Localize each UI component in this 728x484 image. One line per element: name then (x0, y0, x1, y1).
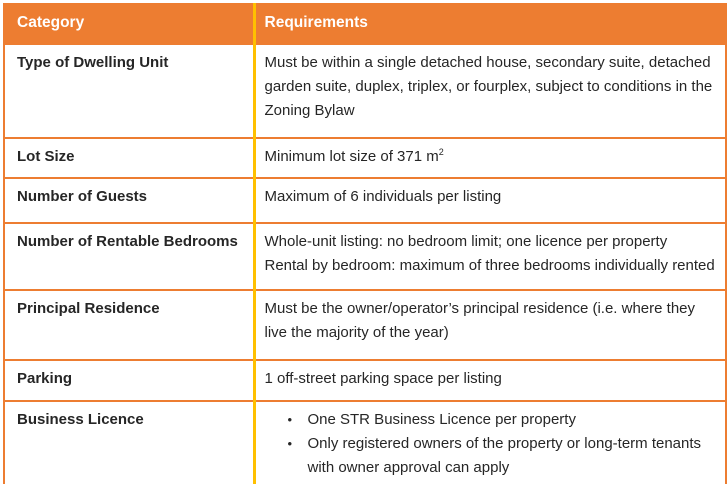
requirement-principal-residence: Must be the owner/operator’s principal r… (254, 290, 726, 360)
table-row: Principal Residence Must be the owner/op… (4, 290, 726, 360)
header-category: Category (4, 4, 254, 44)
table-row: Number of Rentable Bedrooms Whole-unit l… (4, 223, 726, 290)
table-row: Lot Size Minimum lot size of 371 m2 (4, 138, 726, 178)
table-row: Parking 1 off-street parking space per l… (4, 360, 726, 401)
lot-size-text: Minimum lot size of 371 m (265, 148, 439, 165)
table-row: Type of Dwelling Unit Must be within a s… (4, 44, 726, 138)
rentable-bedrooms-line-2: Rental by bedroom: maximum of three bedr… (265, 254, 716, 278)
category-business-licence: Business Licence (4, 401, 254, 484)
category-parking: Parking (4, 360, 254, 401)
business-licence-bullet-1: • One STR Business Licence per property (265, 408, 716, 432)
page: Category Requirements Type of Dwelling U… (0, 0, 728, 484)
header-requirements: Requirements (254, 4, 726, 44)
table-row: Number of Guests Maximum of 6 individual… (4, 178, 726, 223)
bullet-1-text: One STR Business Licence per property (308, 408, 716, 432)
category-lot-size: Lot Size (4, 138, 254, 178)
requirement-dwelling-unit: Must be within a single detached house, … (254, 44, 726, 138)
category-principal-residence: Principal Residence (4, 290, 254, 360)
bullet-icon: • (288, 408, 308, 432)
business-licence-bullet-2: • Only registered owners of the property… (265, 432, 716, 480)
requirements-table: Category Requirements Type of Dwelling U… (3, 3, 727, 484)
category-number-of-guests: Number of Guests (4, 178, 254, 223)
requirement-parking: 1 off-street parking space per listing (254, 360, 726, 401)
requirement-rentable-bedrooms: Whole-unit listing: no bedroom limit; on… (254, 223, 726, 290)
rentable-bedrooms-line-1: Whole-unit listing: no bedroom limit; on… (265, 230, 716, 254)
requirement-number-of-guests: Maximum of 6 individuals per listing (254, 178, 726, 223)
table-row: Business Licence • One STR Business Lice… (4, 401, 726, 484)
bullet-2-text: Only registered owners of the property o… (308, 432, 716, 480)
bullet-icon: • (288, 432, 308, 480)
square-metre-superscript: 2 (439, 147, 444, 157)
requirement-lot-size: Minimum lot size of 371 m2 (254, 138, 726, 178)
category-dwelling-unit: Type of Dwelling Unit (4, 44, 254, 138)
table-header-row: Category Requirements (4, 4, 726, 44)
requirement-business-licence: • One STR Business Licence per property … (254, 401, 726, 484)
category-rentable-bedrooms: Number of Rentable Bedrooms (4, 223, 254, 290)
